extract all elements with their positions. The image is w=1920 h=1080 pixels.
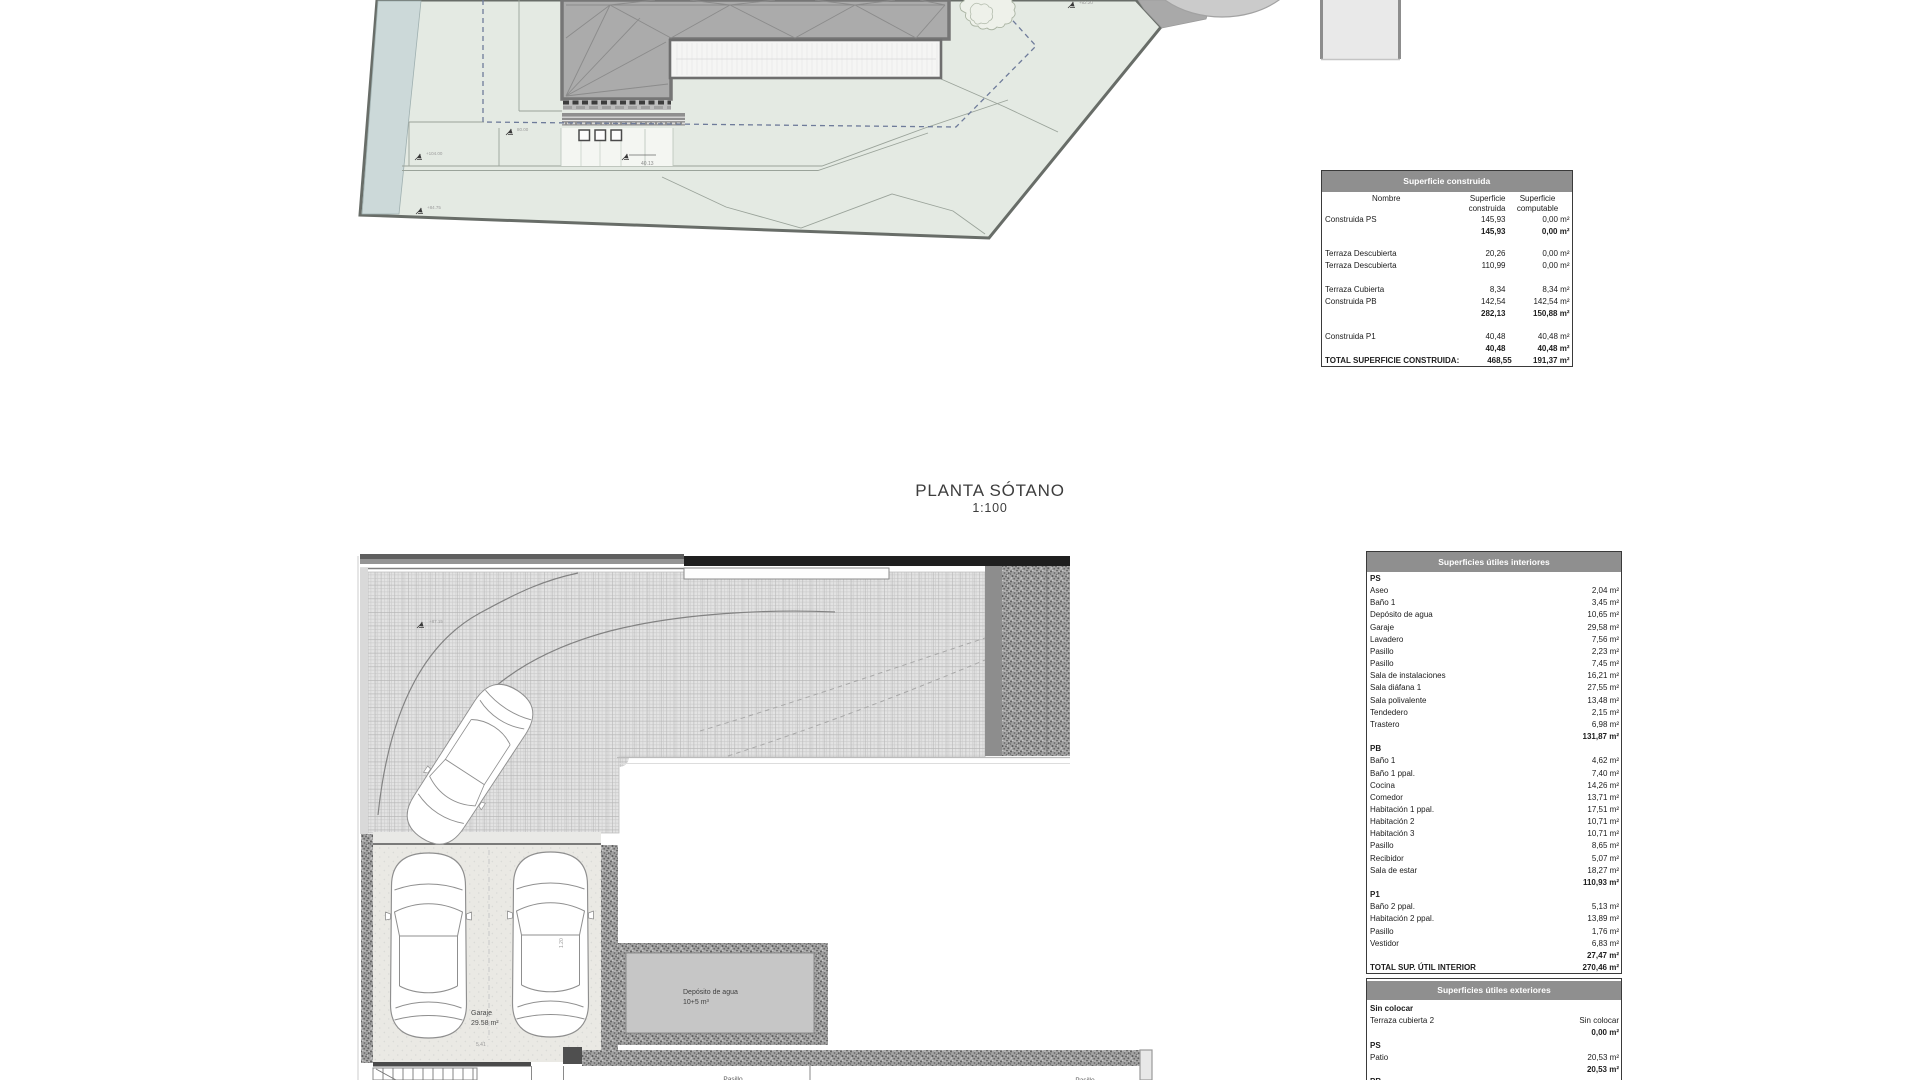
svg-text:29.58 m²: 29.58 m²: [471, 1020, 499, 1027]
svg-text:80.00: 80.00: [517, 127, 529, 132]
svg-text:1.20: 1.20: [559, 938, 565, 948]
svg-text:10+5 m³: 10+5 m³: [683, 999, 710, 1006]
svg-text:5.41: 5.41: [476, 1042, 486, 1048]
svg-text:Pasillo: Pasillo: [723, 1076, 743, 1080]
svg-text:+84.75: +84.75: [427, 205, 441, 210]
svg-text:+82.20: +82.20: [1079, 0, 1093, 5]
svg-text:+87.15: +87.15: [429, 619, 443, 624]
svg-text:Depósito de agua: Depósito de agua: [683, 989, 738, 996]
svg-text:Garaje: Garaje: [471, 1010, 492, 1017]
svg-text:+104.00: +104.00: [426, 151, 443, 156]
svg-text:40.13: 40.13: [641, 161, 654, 167]
